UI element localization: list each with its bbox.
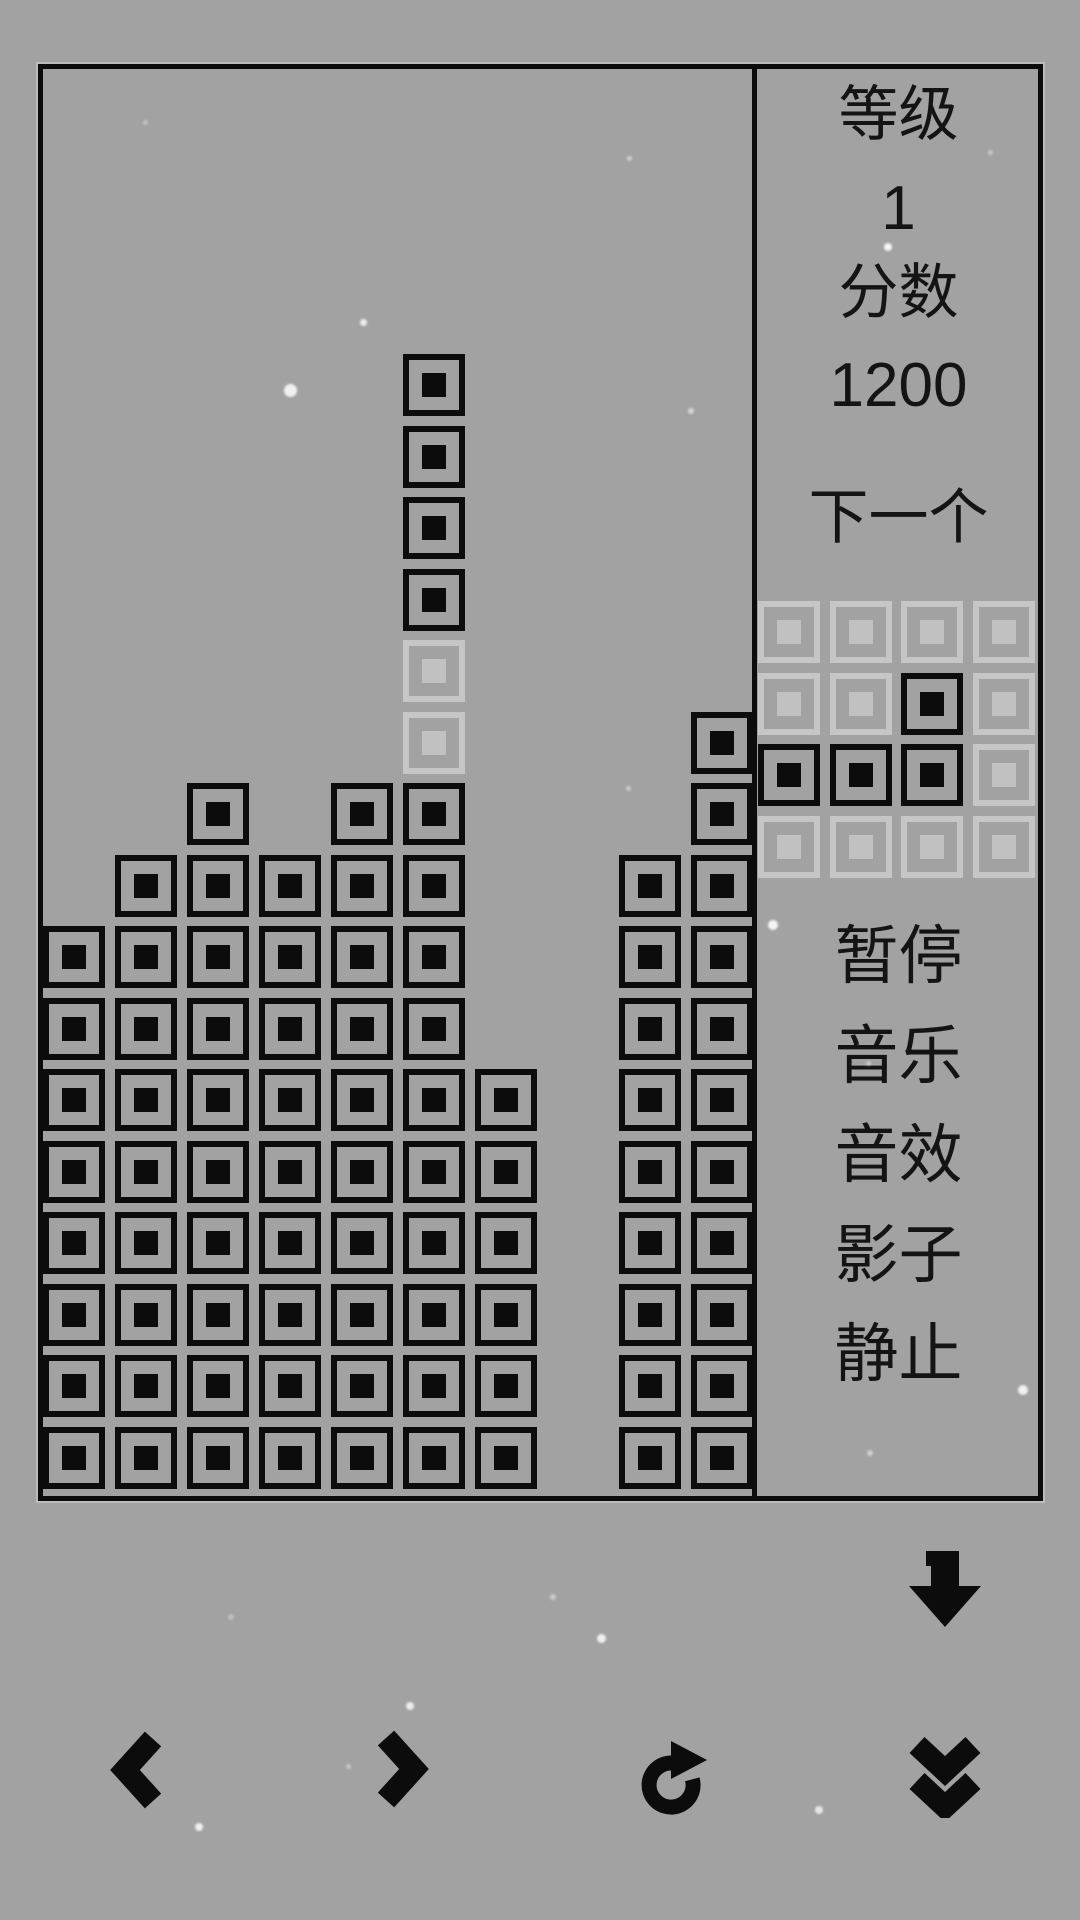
tetromino-block <box>115 1212 177 1274</box>
tetromino-block <box>691 1427 753 1489</box>
tetromino-block <box>331 998 393 1060</box>
tetromino-block <box>115 1355 177 1417</box>
board <box>43 70 752 1496</box>
sidebar: 等级 1 分数 1200 下一个 暂停音乐音效影子静止 <box>757 70 1040 1496</box>
tetromino-block <box>691 1212 753 1274</box>
tetromino-block <box>187 1355 249 1417</box>
tetromino-block <box>691 998 753 1060</box>
preview-empty-cell <box>973 601 1035 663</box>
tetromino-block <box>691 1069 753 1131</box>
rotate-button[interactable] <box>639 1735 711 1819</box>
menu-item-still[interactable]: 静止 <box>757 1321 1040 1387</box>
particle <box>867 1450 873 1456</box>
tetromino-block <box>403 426 465 488</box>
menu-item-pause[interactable]: 暂停 <box>757 923 1040 989</box>
particle <box>195 1823 203 1831</box>
tetromino-block <box>691 926 753 988</box>
tetromino-block <box>331 1427 393 1489</box>
tetromino-block <box>259 1284 321 1346</box>
tetromino-block <box>43 1284 105 1346</box>
particle <box>550 1594 556 1600</box>
tetromino-block <box>403 783 465 845</box>
ghost-block <box>403 640 465 702</box>
tetromino-block <box>331 1355 393 1417</box>
tetromino-block <box>331 783 393 845</box>
tetromino-block <box>43 1141 105 1203</box>
particle <box>360 319 367 326</box>
tetromino-block <box>619 1427 681 1489</box>
preview-empty-cell <box>758 601 820 663</box>
tetromino-block <box>691 1284 753 1346</box>
particle <box>1018 1385 1028 1395</box>
tetromino-block <box>259 1355 321 1417</box>
tetromino-block <box>115 1284 177 1346</box>
particle <box>688 408 694 414</box>
double-chevron-down-icon <box>909 1734 981 1818</box>
tetromino-block <box>475 1069 537 1131</box>
particle <box>143 120 148 125</box>
menu-item-music[interactable]: 音乐 <box>757 1023 1040 1089</box>
tetromino-block <box>619 1212 681 1274</box>
tetromino-block <box>403 1284 465 1346</box>
tetromino-block <box>331 1141 393 1203</box>
tetromino-block <box>403 1069 465 1131</box>
preview-empty-cell <box>901 816 963 878</box>
tetromino-block <box>403 354 465 416</box>
tetromino-block <box>43 926 105 988</box>
tetromino-block <box>403 1212 465 1274</box>
move-right-button[interactable] <box>376 1730 432 1808</box>
particle <box>768 920 778 930</box>
tetromino-block <box>331 926 393 988</box>
tetromino-block <box>187 926 249 988</box>
particle <box>406 1702 414 1710</box>
tetromino-block <box>187 998 249 1060</box>
tetromino-block <box>403 1427 465 1489</box>
next-piece-preview <box>758 601 1039 882</box>
preview-empty-cell <box>830 673 892 735</box>
game-screen: 等级 1 分数 1200 下一个 暂停音乐音效影子静止 <box>0 0 1080 1920</box>
level-value: 1 <box>757 178 1040 240</box>
score-value: 1200 <box>757 355 1040 417</box>
tetromino-block <box>691 1141 753 1203</box>
tetromino-block <box>403 497 465 559</box>
tetromino-block <box>403 926 465 988</box>
preview-piece-block <box>758 744 820 806</box>
tetromino-block <box>259 1069 321 1131</box>
score-label: 分数 <box>757 263 1040 323</box>
tetromino-block <box>187 1069 249 1131</box>
tetromino-block <box>691 712 753 774</box>
tetromino-block <box>43 1212 105 1274</box>
preview-piece-block <box>901 673 963 735</box>
tetromino-block <box>115 855 177 917</box>
tetromino-block <box>115 1427 177 1489</box>
tetromino-block <box>403 569 465 631</box>
preview-empty-cell <box>901 601 963 663</box>
particle <box>627 156 632 161</box>
tetromino-block <box>259 1212 321 1274</box>
tetromino-block <box>115 926 177 988</box>
tetromino-block <box>331 1212 393 1274</box>
tetromino-block <box>619 1069 681 1131</box>
tetromino-block <box>187 1141 249 1203</box>
tetromino-block <box>115 1069 177 1131</box>
tetromino-block <box>43 1427 105 1489</box>
particle <box>228 1614 234 1620</box>
tetromino-block <box>43 1069 105 1131</box>
particle <box>346 1764 351 1769</box>
tetromino-block <box>115 998 177 1060</box>
preview-empty-cell <box>973 744 1035 806</box>
tetromino-block <box>259 1427 321 1489</box>
tetromino-block <box>619 1355 681 1417</box>
particle <box>597 1634 606 1643</box>
tetromino-block <box>475 1427 537 1489</box>
preview-empty-cell <box>973 816 1035 878</box>
particle <box>866 1061 871 1066</box>
tetromino-block <box>691 855 753 917</box>
tetromino-block <box>115 1141 177 1203</box>
move-left-button[interactable] <box>107 1731 163 1809</box>
tetromino-block <box>403 1141 465 1203</box>
tetromino-block <box>475 1212 537 1274</box>
tetromino-block <box>187 1427 249 1489</box>
tetromino-block <box>619 1141 681 1203</box>
tetromino-block <box>331 1284 393 1346</box>
preview-piece-block <box>901 744 963 806</box>
tetromino-block <box>259 926 321 988</box>
preview-piece-block <box>830 744 892 806</box>
tetromino-block <box>187 855 249 917</box>
tetromino-block <box>187 1212 249 1274</box>
tetromino-block <box>259 1141 321 1203</box>
tetromino-block <box>259 998 321 1060</box>
tetromino-block <box>187 1284 249 1346</box>
tetromino-block <box>475 1141 537 1203</box>
tetromino-block <box>619 926 681 988</box>
tetromino-block <box>43 998 105 1060</box>
chevron-right-icon <box>376 1730 432 1808</box>
particle <box>815 1806 823 1814</box>
preview-empty-cell <box>758 816 820 878</box>
soft-drop-button[interactable] <box>907 1551 983 1627</box>
tetromino-block <box>619 855 681 917</box>
preview-empty-cell <box>758 673 820 735</box>
tetromino-block <box>403 1355 465 1417</box>
particle <box>884 243 892 251</box>
ghost-block <box>403 712 465 774</box>
menu-item-shadow[interactable]: 影子 <box>757 1222 1040 1288</box>
tetromino-block <box>403 855 465 917</box>
tetromino-block <box>691 783 753 845</box>
tetromino-block <box>331 1069 393 1131</box>
preview-empty-cell <box>830 601 892 663</box>
preview-empty-cell <box>830 816 892 878</box>
tetromino-block <box>403 998 465 1060</box>
tetromino-block <box>187 783 249 845</box>
menu-item-sound[interactable]: 音效 <box>757 1122 1040 1188</box>
tetromino-block <box>43 1355 105 1417</box>
tetromino-block <box>691 1355 753 1417</box>
rotate-clockwise-icon <box>639 1735 711 1819</box>
level-label: 等级 <box>757 85 1040 145</box>
tetromino-block <box>259 855 321 917</box>
arrow-down-icon <box>907 1551 983 1627</box>
chevron-left-icon <box>107 1731 163 1809</box>
tetromino-block <box>619 998 681 1060</box>
particle <box>284 384 297 397</box>
tetromino-block <box>331 855 393 917</box>
preview-empty-cell <box>973 673 1035 735</box>
tetromino-block <box>619 1284 681 1346</box>
next-label: 下一个 <box>757 488 1040 548</box>
particle <box>626 786 631 791</box>
particle <box>988 150 993 155</box>
tetromino-block <box>475 1284 537 1346</box>
hard-drop-button[interactable] <box>909 1734 981 1818</box>
tetromino-block <box>475 1355 537 1417</box>
